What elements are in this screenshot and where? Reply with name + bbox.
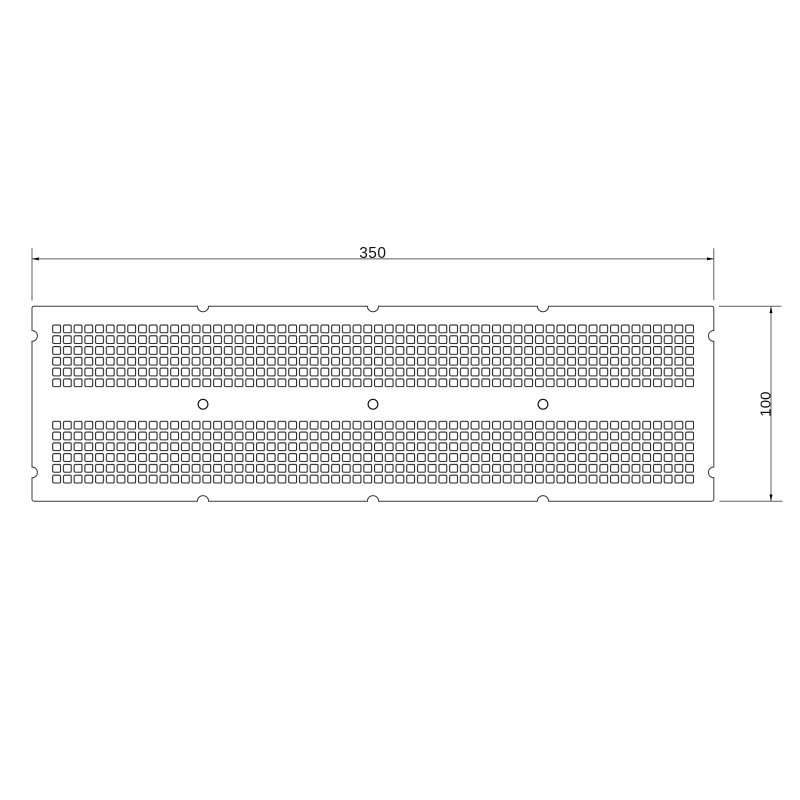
svg-text:100: 100: [758, 392, 775, 417]
svg-text:350: 350: [359, 245, 386, 262]
